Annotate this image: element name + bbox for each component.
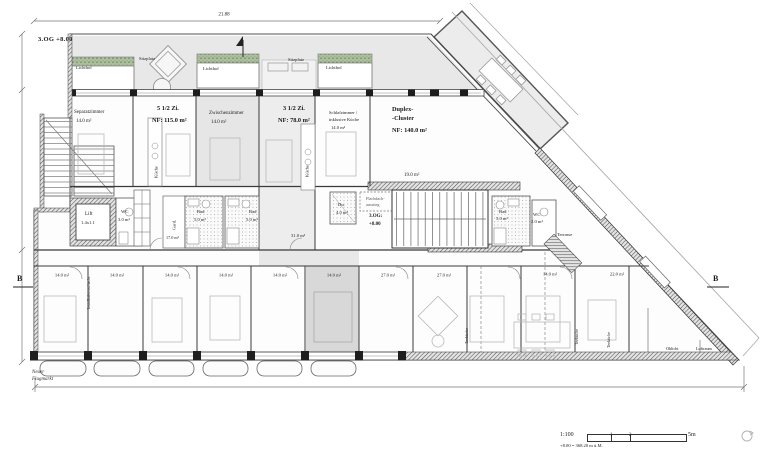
floor-title: 3.OG +8.00 [38, 37, 73, 44]
flachdach-label-1: Flachdach- [366, 197, 385, 201]
apartment2-name: 3 1/2 Zi. [283, 106, 305, 112]
kueche-label-2: Küche [306, 165, 311, 177]
bottom-room-area-9: 14.0 m² [543, 273, 557, 278]
apartment3-name-1: Duplex- [392, 107, 413, 113]
stair-level-label-1: 3.OG: [369, 214, 382, 219]
bad-right-label: Bad [499, 210, 506, 215]
dimension-top-label: 21.88 [218, 13, 229, 18]
hall31-area: 31.0 m² [291, 234, 305, 239]
terrasse-label: Terrasse [557, 233, 572, 238]
floor-plan-page: 3.OG +8.00 21.88 Sitzplatz Lichthof Lich… [0, 0, 780, 455]
bottom-room-area-2: 14.0 m² [110, 274, 124, 279]
apartment3-area: NF: 140.0 m² [392, 128, 427, 134]
bottom-room-area-1: 14.0 m² [55, 274, 69, 279]
section-marker-right: B [713, 275, 718, 283]
bottom-room-area-4: 14.0 m² [219, 274, 233, 279]
bad-mid-label: Bad [249, 210, 256, 215]
bottom-room-area-10: 22.0 m² [610, 273, 624, 278]
oblicht-label: Oblicht [666, 347, 679, 351]
bottom-room-area-3: 14.0 m² [165, 274, 179, 279]
bad-left-label: Bad [197, 210, 204, 215]
lichthof-label-3: Lichthof [326, 66, 342, 71]
bottom-room-area-7: 27.0 m² [381, 274, 395, 279]
light-wells [72, 54, 372, 90]
lift-label: Lift [85, 212, 93, 217]
gard-label: Gard. [173, 220, 178, 230]
bad-left-area: 5.0 m² [194, 218, 206, 223]
kueche-label-1: Küche [155, 166, 160, 178]
scale-ratio-label: 1:100 [560, 432, 574, 438]
scale-tick-2: 2 [629, 433, 632, 438]
zwischenzimmer-area: 14.0 m² [211, 120, 226, 125]
bottom-room-area-6: 14.0 m² [327, 274, 341, 279]
teekueche-label-3: Teeküche [607, 332, 611, 348]
room19-area: 19.0 m² [404, 173, 419, 178]
flachdach-label-2: ausstieg [366, 203, 380, 207]
scale-tick-1: 1 [610, 433, 613, 438]
separatzimmer-label: Separatzimmer [74, 110, 104, 115]
separatzimmer-area: 14.0 m² [76, 119, 91, 124]
elevation-note: +8.00 = 368.20 m ü.M. [560, 444, 603, 449]
zwischenzimmer-label: Zwischenzimmer [209, 111, 244, 116]
plan-linework [0, 0, 780, 455]
teekueche-label-2: Teeküche [575, 329, 579, 345]
du-area: 4.0 m² [336, 211, 348, 216]
gard-area: 17.0 m² [166, 236, 179, 240]
installation-shaft-label: Installationsschacht [87, 276, 91, 309]
lichthof-label-1: Lichthof [76, 66, 92, 71]
street-label-2: Flugmarkt [32, 377, 53, 382]
schlafzimmer-label-2: inklusive Küche [329, 118, 359, 123]
teekueche-label-1: Teeküche [465, 328, 469, 344]
bottom-room-area-8: 27.0 m² [437, 274, 451, 279]
bad-mid-area: 5.0 m² [246, 218, 258, 223]
bottom-facade [30, 351, 739, 376]
wc-right-area: 2.0 m² [531, 220, 543, 225]
lift-size: 1.4x1.1 [81, 221, 95, 226]
apartment1-area: NF: 115.0 m² [152, 118, 187, 124]
schlafzimmer-label-1: Schlafzimmer / [329, 111, 357, 116]
stair-level-label-2: +8.00 [369, 222, 381, 227]
rotate-icon [742, 431, 753, 441]
schlafzimmer-area: 14.0 m² [331, 126, 345, 131]
section-marker-left: B [17, 275, 22, 283]
bad-right-area: 5.0 m² [496, 217, 508, 222]
bottom-room-area-5: 14.0 m² [273, 274, 287, 279]
apartment2-area: NF: 78.0 m² [278, 118, 310, 124]
roof-sitzplatz-label-2: Sitzplatz [288, 58, 304, 63]
luftraum-label: Luftraum [696, 347, 712, 351]
wc-right-label: WC [533, 213, 540, 218]
roof-sitzplatz-label: Sitzplatz [139, 57, 155, 62]
scale-bar [587, 434, 687, 442]
wc-left-area: 3.0 m² [118, 218, 130, 223]
scale-tick-end: 5m [688, 432, 696, 438]
du-label: Du. [338, 203, 345, 208]
wc-left-label: WC [121, 210, 128, 215]
lichthof-label-2: Lichthof [203, 67, 219, 72]
apartment3-name-2: -Cluster [392, 116, 414, 122]
street-label-1: Neuer [32, 370, 44, 375]
apartment1-name: 5 1/2 Zi. [157, 106, 179, 112]
top-facade-windows [70, 90, 484, 97]
